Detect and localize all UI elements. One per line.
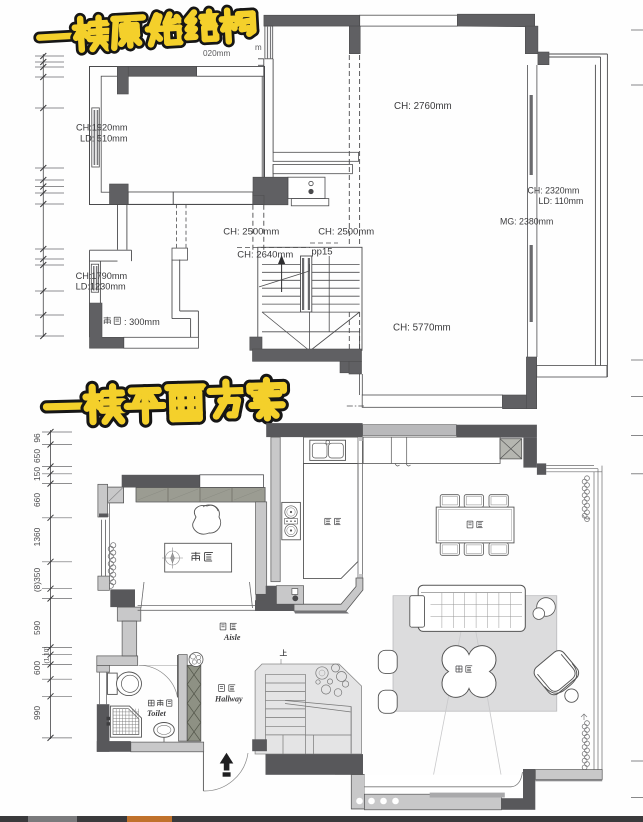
svg-text:CH:1920mm: CH:1920mm xyxy=(76,123,128,133)
svg-text:CH: 2500mm: CH: 2500mm xyxy=(223,227,279,238)
svg-text:Toilet: Toilet xyxy=(147,709,167,718)
svg-text:150: 150 xyxy=(32,467,42,481)
svg-text:CH: 2500mm: CH: 2500mm xyxy=(318,227,374,238)
svg-text:990: 990 xyxy=(32,706,42,720)
svg-text:m: m xyxy=(255,43,262,52)
svg-text:CH:1790mm: CH:1790mm xyxy=(76,271,128,281)
svg-text:(8)350: (8)350 xyxy=(32,568,42,593)
svg-text:600: 600 xyxy=(32,661,42,675)
svg-text:CH: 2320mm: CH: 2320mm xyxy=(528,186,580,196)
svg-text:CH: 5770mm: CH: 5770mm xyxy=(393,323,451,334)
svg-text:020mm: 020mm xyxy=(203,49,230,58)
svg-text:650: 650 xyxy=(32,449,42,463)
svg-text:Hallway: Hallway xyxy=(214,695,243,704)
svg-text:pp15: pp15 xyxy=(311,247,332,258)
svg-text:CH: 2640mm: CH: 2640mm xyxy=(237,250,293,261)
svg-text:590: 590 xyxy=(32,621,42,635)
svg-text:(1.10): (1.10) xyxy=(44,647,51,664)
svg-text:660: 660 xyxy=(32,493,42,507)
svg-text:LD: 510mm: LD: 510mm xyxy=(80,134,128,144)
svg-text:Aisle: Aisle xyxy=(223,633,241,642)
svg-text:1360: 1360 xyxy=(32,527,42,546)
svg-text:MG: 2380mm: MG: 2380mm xyxy=(500,217,553,227)
svg-text:LD:1230mm: LD:1230mm xyxy=(76,282,126,292)
svg-text:CH: 2760mm: CH: 2760mm xyxy=(394,101,452,112)
svg-text:: 300mm: : 300mm xyxy=(124,317,160,327)
svg-text:96: 96 xyxy=(32,433,42,443)
svg-text:LD: 110mm: LD: 110mm xyxy=(539,196,584,206)
